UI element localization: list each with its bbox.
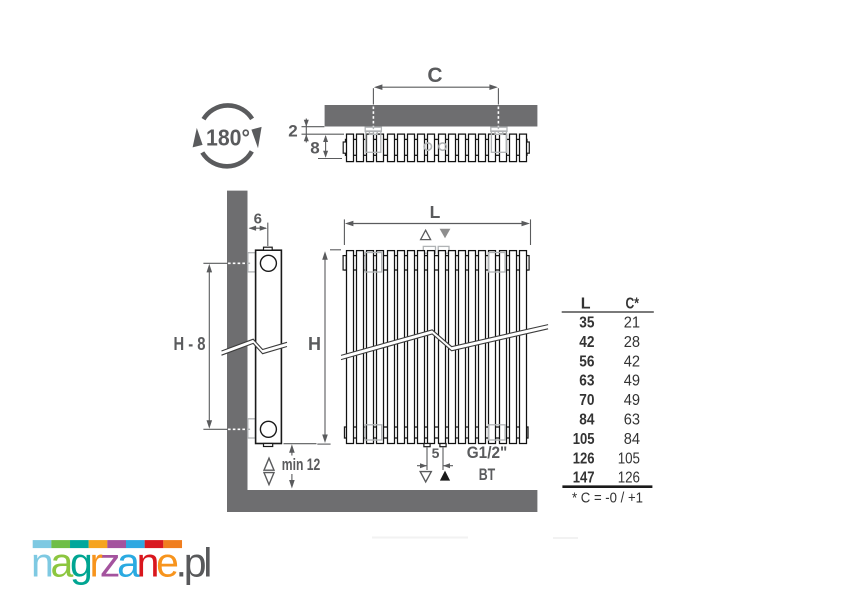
- svg-text:H: H: [308, 334, 321, 354]
- svg-text:H - 8: H - 8: [174, 334, 206, 354]
- svg-text:C: C: [427, 64, 442, 87]
- svg-text:105: 105: [618, 450, 640, 467]
- svg-text:C*: C*: [626, 296, 640, 313]
- svg-text:126: 126: [573, 450, 595, 467]
- svg-text:70: 70: [579, 392, 594, 409]
- svg-text:56: 56: [579, 353, 594, 370]
- svg-text:63: 63: [579, 373, 594, 390]
- svg-text:126: 126: [618, 470, 640, 487]
- svg-text:21: 21: [624, 315, 640, 332]
- svg-text:42: 42: [624, 353, 640, 370]
- svg-text:6: 6: [254, 211, 262, 228]
- svg-text:G1/2": G1/2": [467, 443, 508, 462]
- svg-text:L: L: [430, 202, 441, 222]
- svg-text:84: 84: [624, 431, 640, 448]
- svg-text:L: L: [581, 296, 591, 313]
- svg-text:84: 84: [579, 412, 594, 429]
- svg-text:8: 8: [310, 139, 319, 158]
- svg-text:35: 35: [579, 315, 594, 332]
- svg-text:nagrzane.pl: nagrzane.pl: [31, 540, 210, 586]
- svg-text:5: 5: [432, 445, 440, 461]
- svg-text:63: 63: [624, 412, 640, 429]
- svg-text:2: 2: [288, 122, 297, 141]
- svg-text:49: 49: [624, 392, 640, 409]
- svg-text:BT: BT: [479, 465, 496, 484]
- svg-text:min 12: min 12: [282, 455, 321, 474]
- svg-text:49: 49: [624, 373, 640, 390]
- svg-text:42: 42: [579, 334, 594, 351]
- svg-text:180°: 180°: [206, 125, 250, 151]
- svg-text:105: 105: [573, 431, 595, 448]
- svg-text:* C = -0 / +1: * C = -0 / +1: [572, 490, 643, 507]
- svg-text:147: 147: [573, 470, 595, 487]
- svg-text:28: 28: [624, 334, 640, 351]
